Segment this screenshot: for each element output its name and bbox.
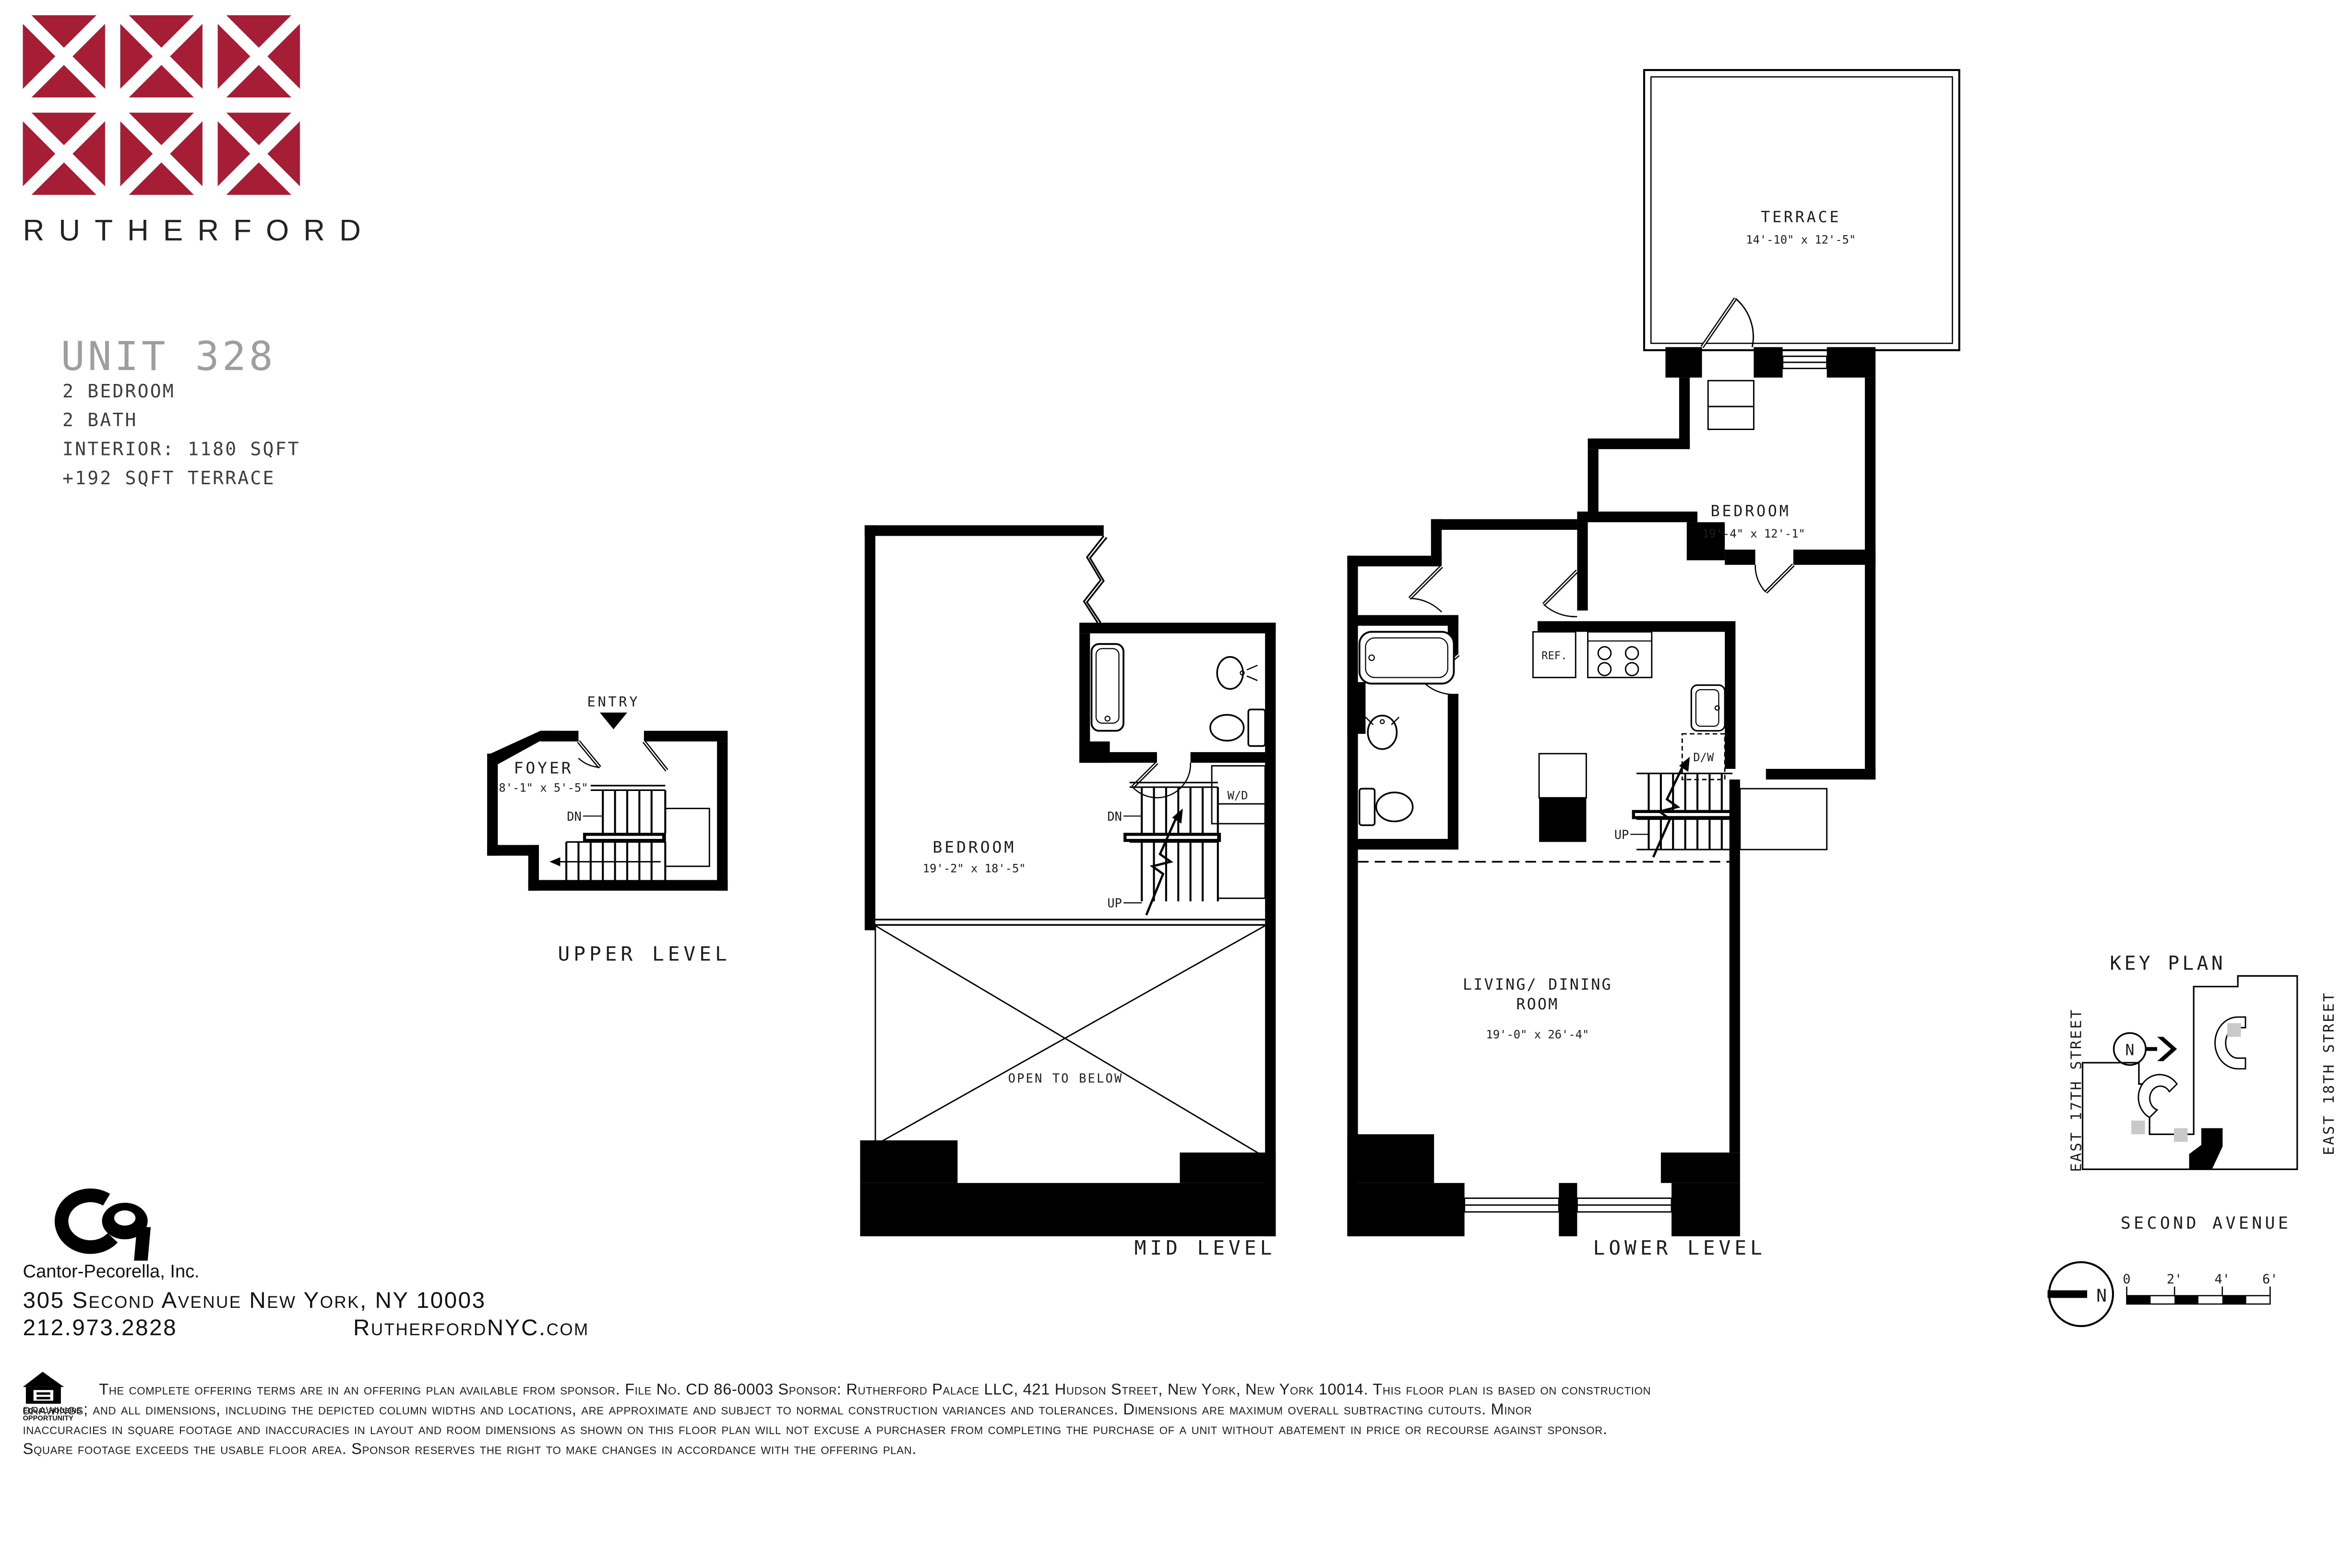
north-compass-icon: N bbox=[2048, 1262, 2113, 1326]
window-icon bbox=[1783, 356, 1827, 368]
terrace-dims: 14'-10" x 12'-5" bbox=[1746, 233, 1856, 247]
scale-tick-4: 4' bbox=[2215, 1272, 2230, 1287]
entry-arrow-icon bbox=[600, 713, 627, 730]
footer-phone: 212.973.2828 bbox=[23, 1316, 178, 1341]
equal-housing-icon bbox=[23, 1372, 64, 1404]
building-outline bbox=[2083, 976, 2297, 1169]
dishwasher-icon: D/W bbox=[1682, 734, 1725, 779]
kitchen-sink-icon bbox=[1691, 685, 1725, 730]
scale-tick-6: 6' bbox=[2262, 1272, 2278, 1287]
living-label-1: LIVING/ DINING bbox=[1463, 976, 1612, 993]
upper-level-caption: UPPER LEVEL bbox=[558, 943, 730, 966]
unit-detail-interior: INTERIOR: 1180 SQFT bbox=[62, 439, 300, 460]
unit-title: UNIT 328 bbox=[61, 335, 276, 381]
scale-tick-0: 0 bbox=[2123, 1272, 2130, 1287]
brand-wordmark: RUTHERFORD bbox=[23, 215, 375, 250]
street-bottom-label: SECOND AVENUE bbox=[2121, 1214, 2291, 1233]
dw-label: D/W bbox=[1693, 751, 1714, 764]
footer-contact-row: 212.973.2828 RutherfordNYC.com bbox=[23, 1316, 589, 1341]
terrace-label: TERRACE bbox=[1761, 209, 1841, 226]
scale-tick-2: 2' bbox=[2167, 1272, 2182, 1287]
key-plan: KEY PLAN EAST 17TH STREET EAST 18TH STRE… bbox=[2068, 953, 2338, 1233]
zigzag-window-icon bbox=[1084, 536, 1104, 623]
key-plan-title: KEY PLAN bbox=[2110, 953, 2226, 975]
lower-up-label: UP bbox=[1614, 827, 1629, 842]
svg-text:N: N bbox=[2096, 1285, 2107, 1306]
stair-icon bbox=[549, 786, 709, 880]
street-right-label: EAST 18TH STREET bbox=[2321, 992, 2338, 1155]
open-to-below-label: OPEN TO BELOW bbox=[1008, 1071, 1123, 1085]
svg-text:N: N bbox=[2125, 1041, 2134, 1059]
toilet-icon bbox=[1360, 789, 1413, 825]
window-icon bbox=[1465, 1198, 1559, 1212]
firm-name: Cantor-Pecorella, Inc. bbox=[23, 1261, 200, 1282]
disclaimer-line-4: Square footage exceeds the usable floor … bbox=[23, 1442, 917, 1459]
disclaimer-line-2: drawings; and all dimensions, including … bbox=[23, 1402, 1532, 1419]
refrigerator-icon: REF. bbox=[1533, 632, 1576, 677]
footer-address: 305 Second Avenue New York, NY 10003 bbox=[23, 1288, 486, 1314]
cantor-pecorella-logo-icon bbox=[61, 1196, 151, 1261]
mid-bedroom-label: BEDROOM bbox=[932, 838, 1016, 856]
lower-level-plan: TERRACE 14'-10" x 12'-5" bbox=[1347, 70, 1959, 1259]
wd-label: W/D bbox=[1228, 789, 1248, 802]
upper-dn-label: DN bbox=[567, 809, 582, 824]
lower-bedroom-label: BEDROOM bbox=[1711, 503, 1791, 520]
toilet-icon bbox=[1210, 709, 1265, 746]
upper-level-plan: ENTRY bbox=[487, 694, 731, 966]
living-dims: 19'-0" x 26'-4" bbox=[1486, 1028, 1589, 1041]
kitchen-island bbox=[1539, 754, 1586, 842]
mid-up-label: UP bbox=[1107, 896, 1122, 910]
mid-dn-label: DN bbox=[1107, 809, 1122, 824]
disclaimer-line-1: The complete offering terms are in an of… bbox=[99, 1382, 1651, 1399]
disclaimer-line-3: inaccuracies in square footage and inacc… bbox=[23, 1422, 1608, 1439]
bathtub-icon bbox=[1360, 632, 1454, 683]
mid-level-plan: W/D DN UP OPEN TO BELOW bbox=[860, 525, 1276, 1259]
ref-label: REF. bbox=[1541, 650, 1567, 662]
window-icon bbox=[1577, 1198, 1671, 1212]
lower-bedroom-dims: 19'-4" x 12'-1" bbox=[1702, 527, 1805, 540]
unit-detail-bedrooms: 2 BEDROOM bbox=[62, 381, 175, 402]
unit-detail-baths: 2 BATH bbox=[62, 409, 138, 431]
sink-icon bbox=[1365, 716, 1399, 749]
unit-detail-terrace: +192 SQFT TERRACE bbox=[62, 467, 275, 489]
foyer-dims: 8'-1" x 5'-5" bbox=[499, 781, 588, 795]
footer-website[interactable]: RutherfordNYC.com bbox=[353, 1316, 589, 1341]
entry-label: ENTRY bbox=[587, 694, 640, 710]
foyer-label: FOYER bbox=[513, 758, 573, 777]
floorplan-sheet: ENTRY bbox=[0, 0, 2352, 1568]
stair-icon bbox=[1123, 783, 1265, 915]
living-label-2: ROOM bbox=[1516, 996, 1559, 1013]
lower-level-caption: LOWER LEVEL bbox=[1593, 1236, 1766, 1259]
rutherford-logo-icon bbox=[23, 15, 300, 195]
stove-icon bbox=[1588, 632, 1652, 677]
mid-bedroom-dims: 19'-2" x 18'-5" bbox=[923, 862, 1026, 875]
scale-bar: 0 2' 4' 6' bbox=[2123, 1272, 2278, 1304]
mid-level-caption: MID LEVEL bbox=[1134, 1236, 1276, 1259]
north-indicator-icon: N bbox=[2114, 1033, 2177, 1065]
sink-icon bbox=[1217, 657, 1257, 689]
bathtub-icon bbox=[1091, 644, 1123, 731]
